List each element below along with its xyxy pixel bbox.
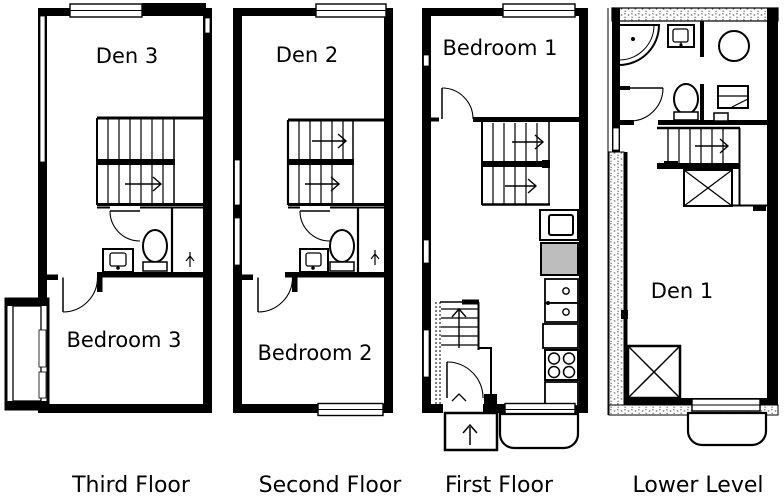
window [613, 128, 619, 150]
shower-head-icon [371, 250, 379, 265]
staircase [97, 118, 203, 205]
laundry-stack-icon [545, 279, 578, 322]
sink-icon [103, 249, 133, 272]
bathroom [97, 207, 212, 278]
floor-plan-lower [608, 8, 778, 445]
caption-lower-level: Lower Level [618, 473, 778, 496]
door-swing [447, 362, 483, 398]
range-icon [545, 350, 578, 380]
kitchen-appliances [540, 210, 578, 406]
stair-direction-arrow [512, 135, 543, 149]
door-swing [110, 211, 140, 241]
window [692, 399, 760, 411]
foundation-wall [612, 8, 778, 21]
desk-icon [714, 86, 748, 121]
caption-second-floor: Second Floor [250, 473, 410, 496]
room-label-bedroom-2: Bedroom 2 [235, 341, 395, 365]
entry-direction-arrow [452, 394, 466, 401]
room-label-den-1: Den 1 [602, 279, 762, 303]
floor-plan-drawing [0, 0, 784, 496]
crawlspace-x-icon [684, 170, 732, 206]
party-wall-hatch [436, 302, 440, 404]
washer-icon [719, 31, 749, 61]
bedroom-door [47, 272, 103, 312]
room-label-den-2: Den 2 [227, 43, 387, 67]
crawlspace-x-icon [628, 346, 680, 398]
floor-plan-sheet: Den 3 Bedroom 3 Den 2 Bedroom 2 Bedroom … [0, 0, 784, 496]
door-swing [630, 88, 663, 121]
door-swing [442, 88, 473, 119]
balcony [5, 299, 48, 409]
floor-plan-first [422, 4, 588, 450]
room-label-den-3: Den 3 [47, 44, 207, 68]
window [316, 4, 386, 17]
counter-icon [543, 324, 578, 348]
room-label-bedroom-1: Bedroom 1 [420, 36, 580, 60]
door-swing [300, 211, 330, 241]
refrigerator-icon [541, 243, 578, 275]
patio-stoop [500, 414, 578, 448]
caption-third-floor: Third Floor [51, 473, 211, 496]
patio-stoop [688, 413, 766, 445]
stair-direction-arrow [312, 134, 346, 148]
entry-stoop [445, 413, 497, 450]
window [70, 4, 142, 17]
window [40, 16, 210, 162]
shower-head-icon [186, 252, 194, 267]
bedroom-door [242, 272, 298, 312]
toilet-icon [330, 230, 354, 271]
toilet-icon [674, 84, 698, 120]
counter-icon [545, 382, 578, 406]
staircase [288, 120, 392, 205]
stair-direction-arrow [452, 309, 466, 348]
stair-direction-arrow [505, 179, 536, 193]
staircase [482, 122, 550, 205]
window [503, 4, 575, 17]
entry-staircase [440, 300, 497, 409]
room-label-bedroom-3: Bedroom 3 [44, 328, 204, 352]
shower-icon [619, 25, 659, 65]
bathroom [285, 207, 393, 278]
sink-icon [668, 25, 694, 47]
caption-first-floor: First Floor [419, 473, 579, 496]
window [318, 404, 383, 416]
toilet-icon [143, 230, 167, 271]
sink-icon [300, 249, 328, 272]
sink-icon [540, 210, 578, 240]
